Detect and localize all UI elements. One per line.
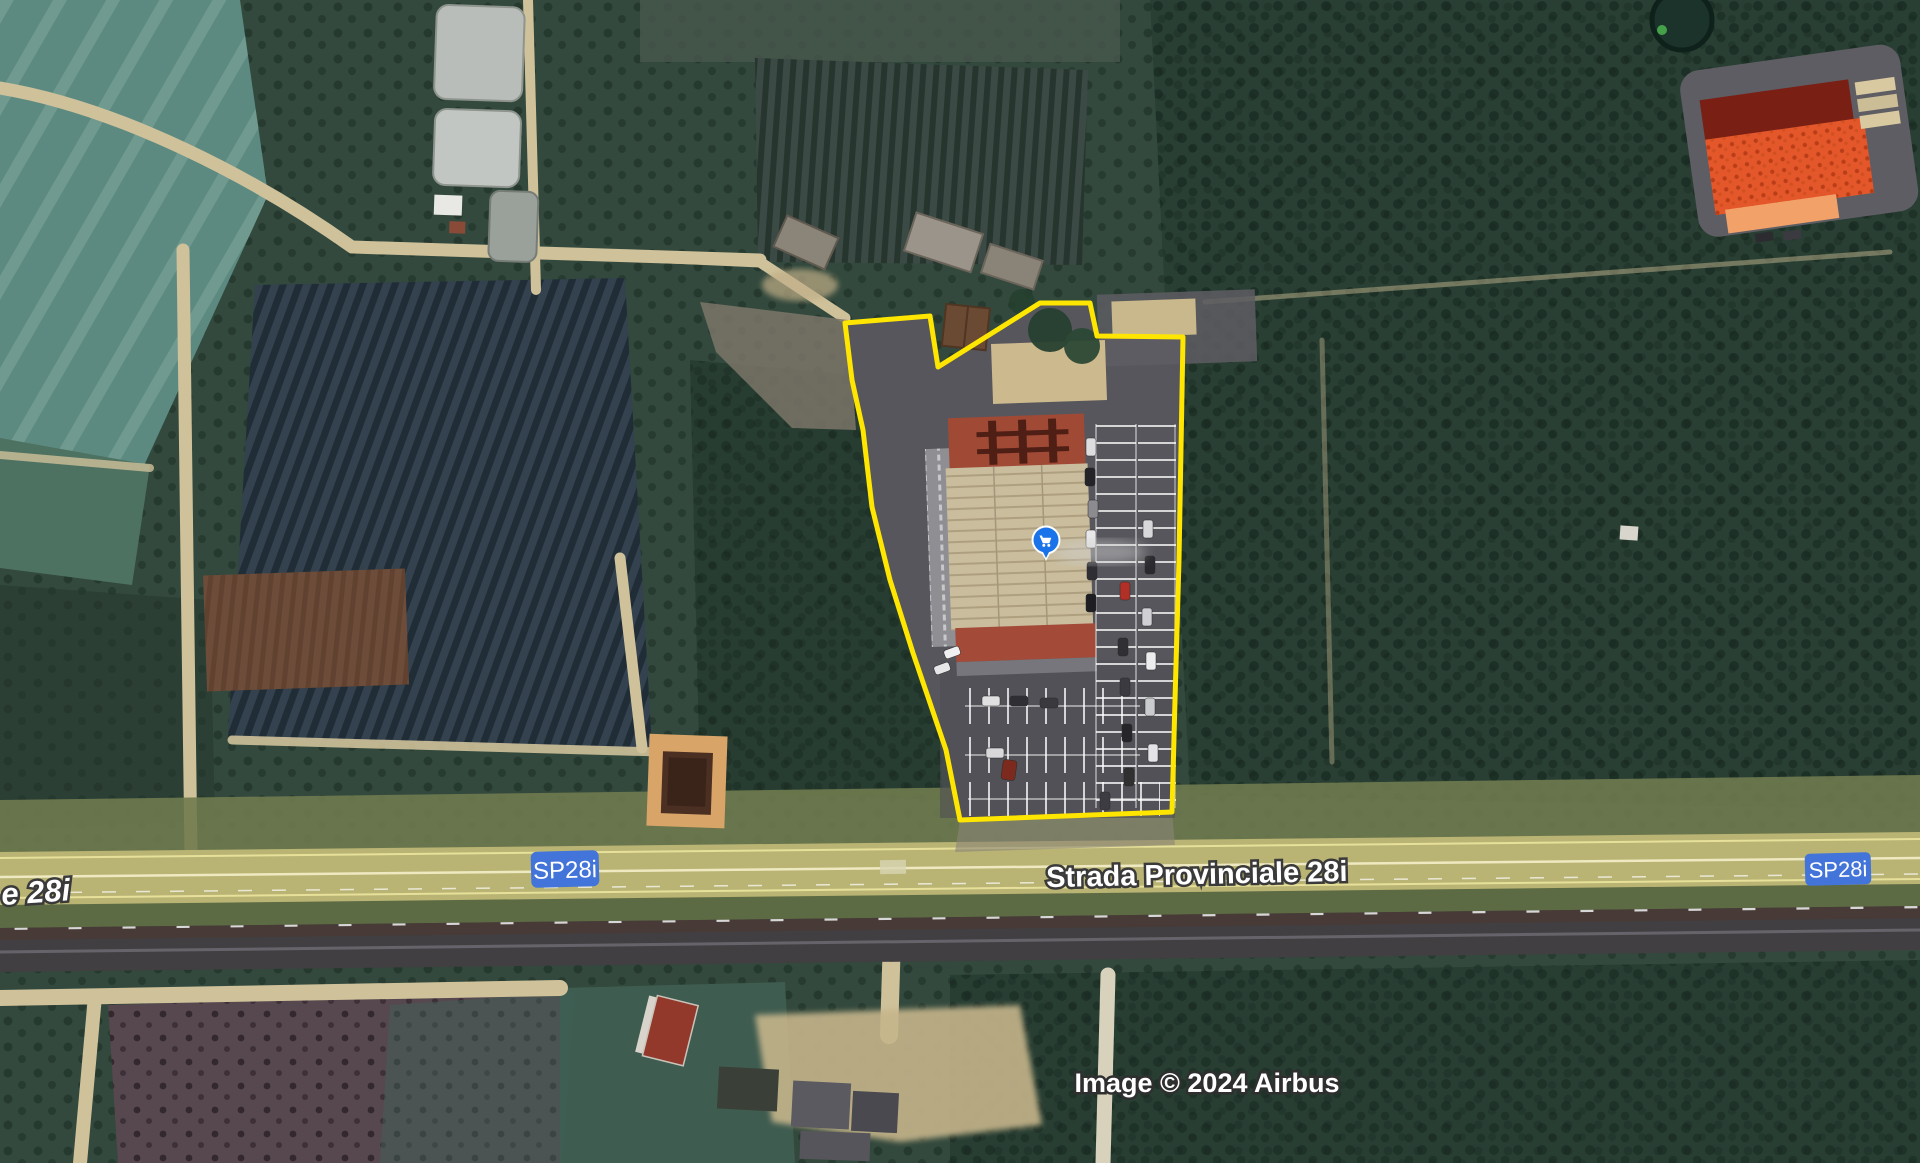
- road-shield-left: SP28i: [531, 850, 600, 888]
- map-canvas: e 28i SP28i Strada Provinciale 28i SP28i…: [0, 0, 1920, 1163]
- road-shield-right: SP28i: [1805, 852, 1872, 886]
- pond: [1652, 0, 1712, 50]
- orange-plot: [646, 734, 727, 829]
- svg-text:SP28i: SP28i: [533, 856, 598, 885]
- svg-text:SP28i: SP28i: [1808, 856, 1867, 883]
- road-name-partial-left: e 28i: [0, 872, 73, 912]
- imagery-attribution: Image © 2024 Airbus: [1074, 1068, 1339, 1098]
- road-name-label: Strada Provinciale 28i: [1046, 856, 1348, 894]
- blur-smudge: [1054, 540, 1146, 564]
- satellite-map-view[interactable]: e 28i SP28i Strada Provinciale 28i SP28i…: [0, 0, 1920, 1163]
- small-structure: [1620, 525, 1639, 540]
